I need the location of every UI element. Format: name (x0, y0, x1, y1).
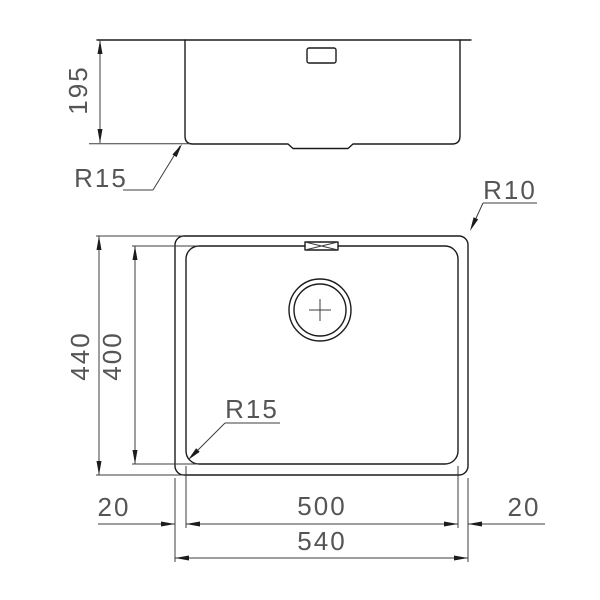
plan-left-margin-label: 20 (98, 492, 131, 522)
side-corner-radius-label: R15 (74, 163, 128, 193)
side-view-bowl-outline (185, 40, 460, 149)
dim-500-arrow-right-icon (444, 522, 458, 527)
plan-right-margin-label: 20 (508, 492, 541, 522)
plan-outer-corner-radius-label: R10 (483, 175, 537, 205)
technical-drawing-canvas: 195 R15 R10 R15 440 400 20 (0, 0, 600, 600)
leader-r10-arrow-icon (470, 217, 478, 231)
plan-inner-corner-radius-label: R15 (225, 394, 279, 424)
side-height-label: 195 (63, 65, 93, 114)
plan-outer-height-label: 440 (65, 331, 95, 380)
dim-540-arrow-right-icon (454, 556, 468, 561)
plan-outer-rim-rect (175, 236, 468, 475)
dim-195-arrow-up-icon (98, 40, 103, 54)
plan-inner-width-label: 500 (297, 491, 346, 521)
dim-400-arrow-down-icon (133, 450, 138, 464)
dim-400-arrow-up-icon (133, 246, 138, 260)
dim-20-left-arrow-icon (161, 522, 175, 527)
dim-20-right-arrow-icon (468, 522, 482, 527)
dim-500-arrow-left-icon (186, 522, 200, 527)
dim-195-arrow-down-icon (98, 129, 103, 143)
dim-440-arrow-down-icon (97, 461, 102, 475)
sink-dimension-drawing: 195 R15 R10 R15 440 400 20 (0, 0, 600, 600)
plan-outer-width-label: 540 (297, 526, 346, 556)
plan-inner-height-label: 400 (97, 331, 127, 380)
leader-r15-side-arrow-icon (172, 144, 182, 157)
side-view-overflow-hole (307, 48, 336, 63)
dim-440-arrow-up-icon (97, 236, 102, 250)
dim-540-arrow-left-icon (175, 556, 189, 561)
